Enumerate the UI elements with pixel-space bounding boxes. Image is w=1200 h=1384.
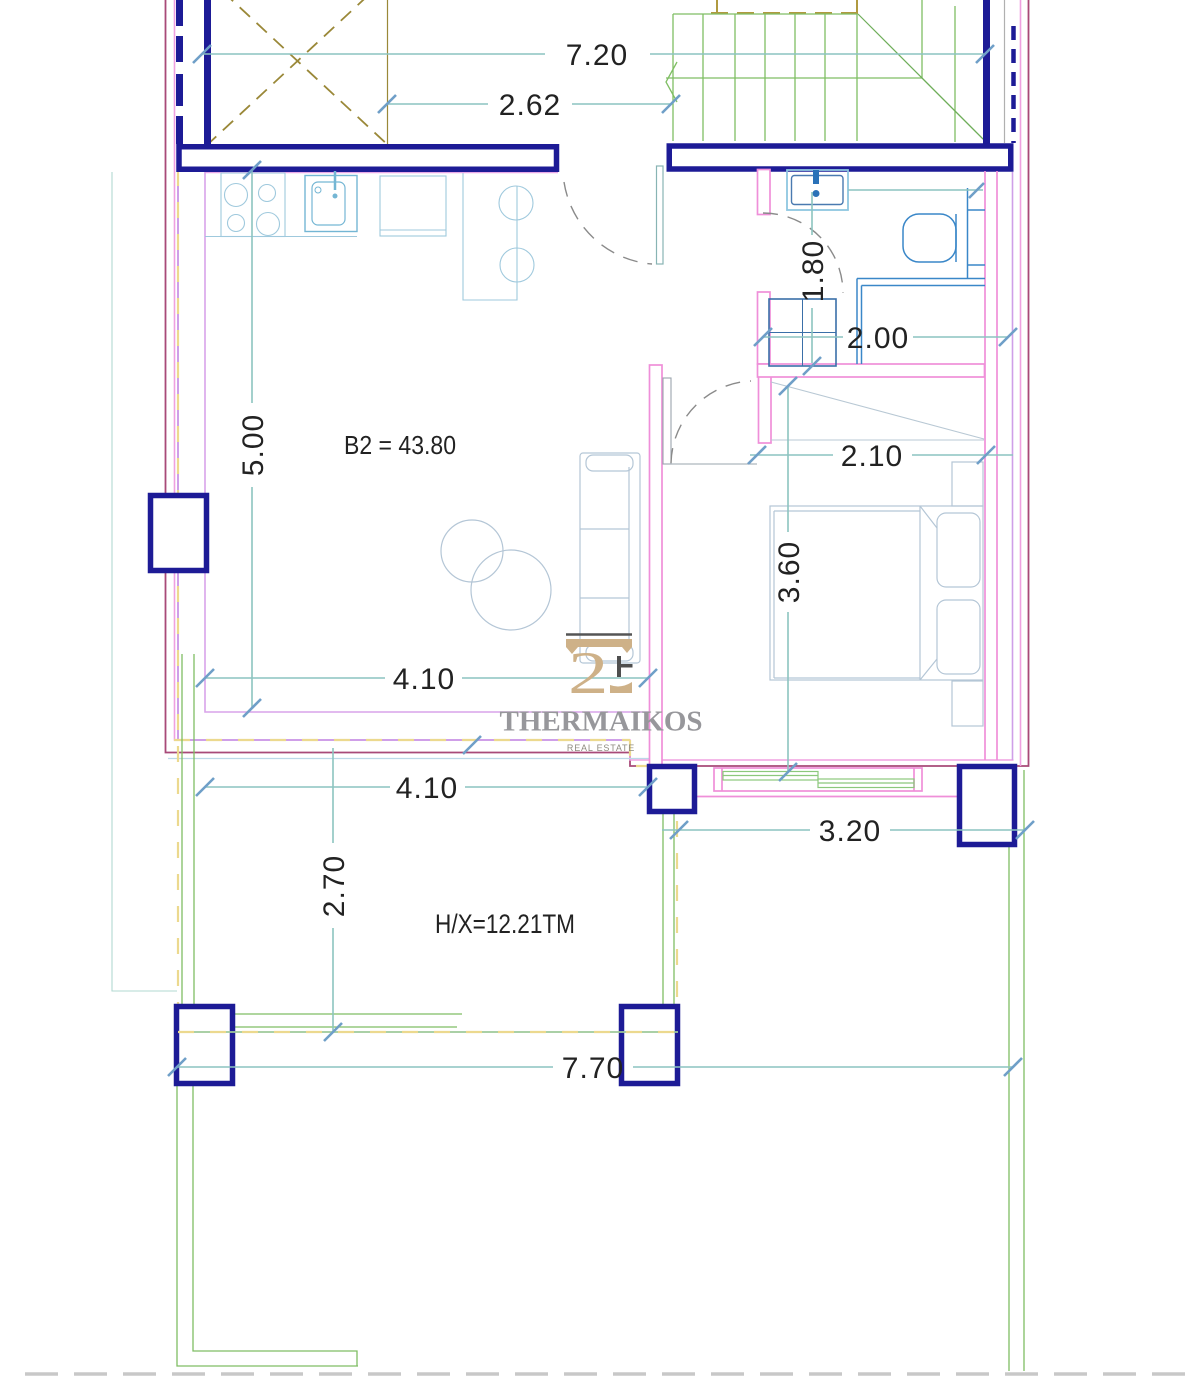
svg-text:2.00: 2.00: [847, 322, 909, 355]
svg-text:B2 = 43.80: B2 = 43.80: [344, 430, 456, 460]
svg-text:2.62: 2.62: [499, 89, 561, 122]
svg-text:2.10: 2.10: [841, 440, 903, 473]
svg-text:3.60: 3.60: [773, 541, 806, 603]
svg-text:7.70: 7.70: [562, 1052, 624, 1085]
svg-text:H/X=12.21TM: H/X=12.21TM: [435, 909, 575, 939]
svg-text:4.10: 4.10: [396, 772, 458, 805]
svg-text:2.70: 2.70: [318, 855, 351, 917]
svg-text:5.00: 5.00: [237, 414, 270, 476]
svg-text:7.20: 7.20: [566, 39, 628, 72]
svg-text:REAL ESTATE: REAL ESTATE: [567, 743, 635, 753]
svg-text:2: 2: [568, 640, 609, 707]
svg-text:4.10: 4.10: [393, 663, 455, 696]
svg-text:3.20: 3.20: [819, 815, 881, 848]
svg-text:THERMAIKOS: THERMAIKOS: [499, 706, 702, 738]
svg-text:1.80: 1.80: [797, 240, 830, 302]
